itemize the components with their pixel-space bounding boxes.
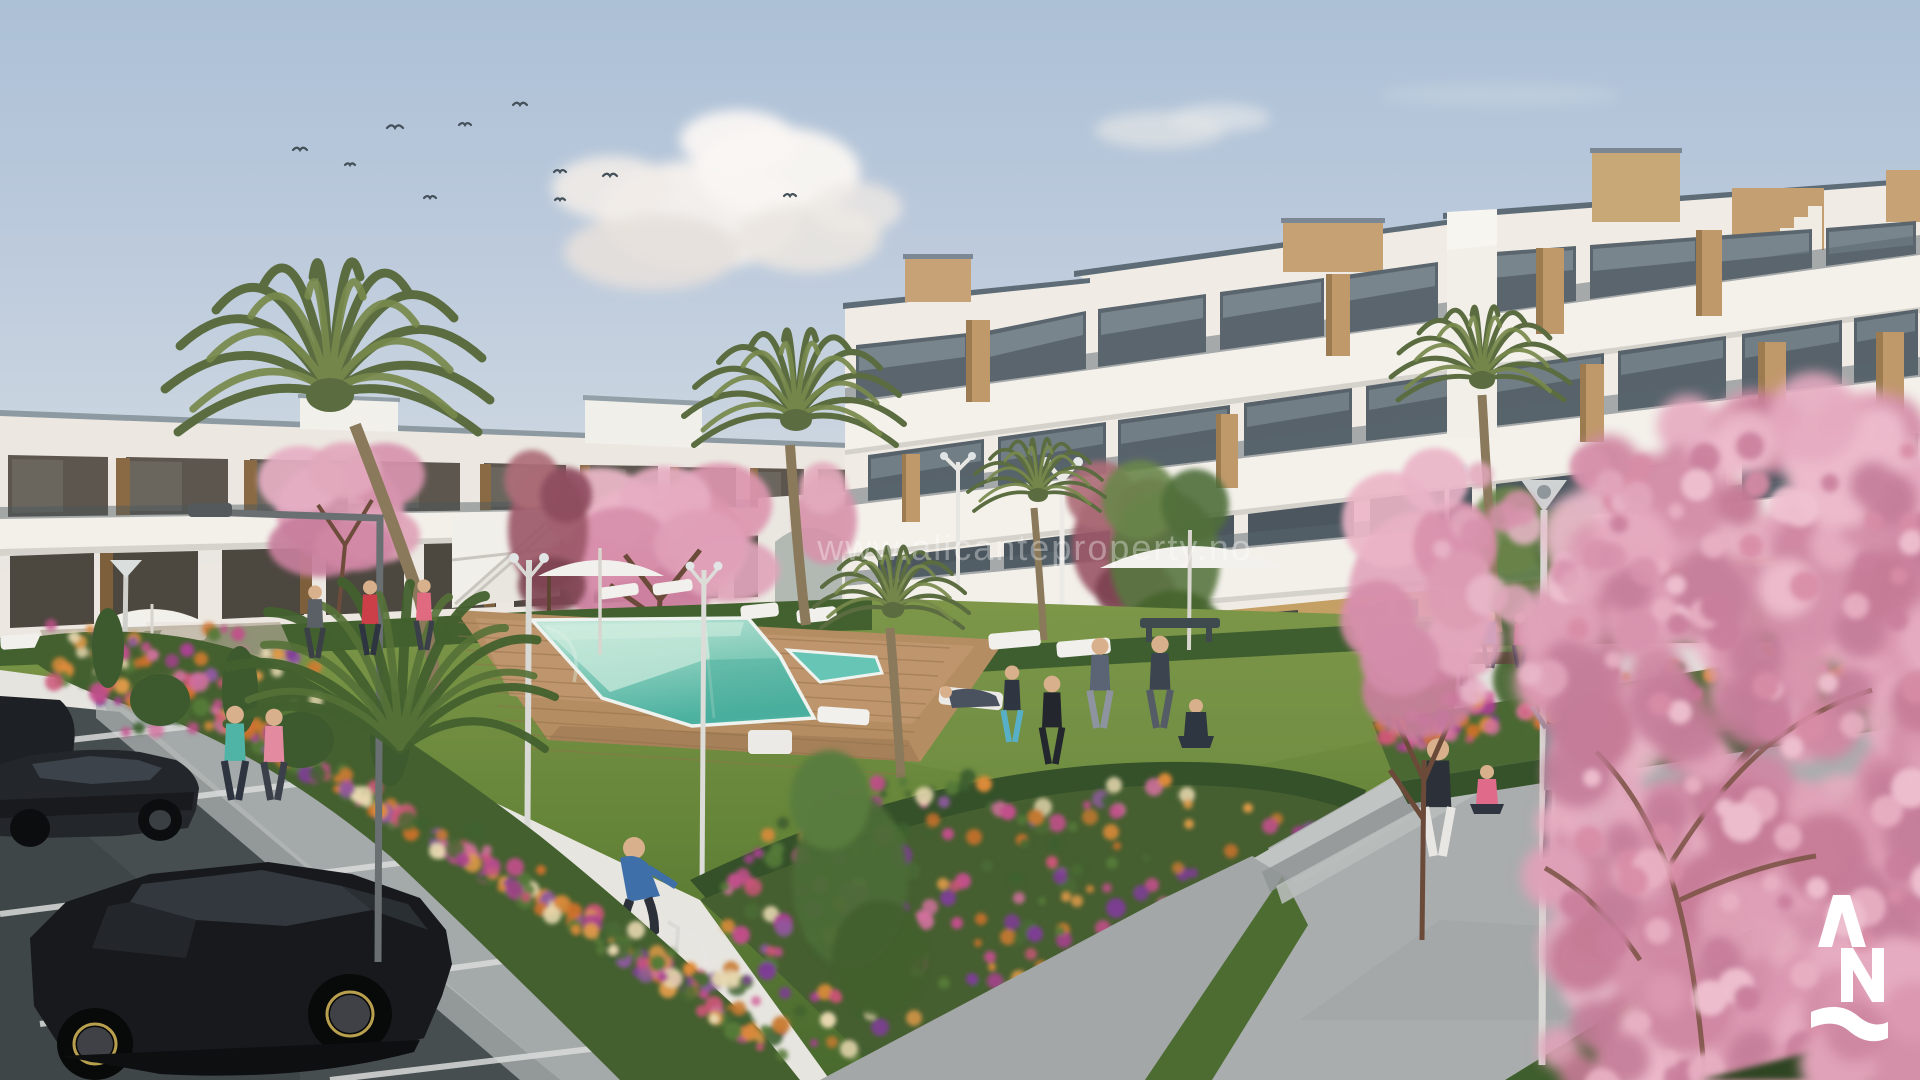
svg-text:www.alicanteproperty.no: www.alicanteproperty.no xyxy=(816,527,1253,568)
